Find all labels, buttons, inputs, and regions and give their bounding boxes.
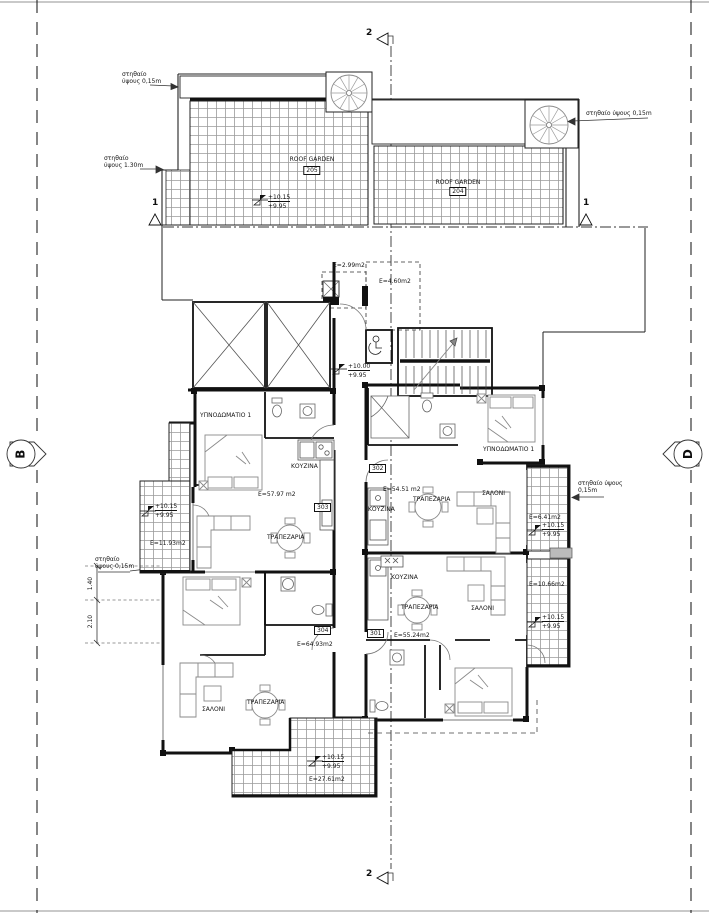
- balcony-left-level-top: +10.15: [155, 503, 177, 511]
- void-over-below: [193, 302, 330, 388]
- balcony-right-lower: [527, 559, 570, 667]
- roof-garden-left-label: ROOF GARDEN: [290, 156, 335, 163]
- bed-302-icon: [477, 394, 535, 442]
- entrance-level-bottom: +9.95: [348, 372, 366, 379]
- floor-plan-drawing: [0, 0, 709, 913]
- balcony-ru-level-bottom: +9.95: [542, 531, 560, 538]
- parapet-note-top-left: στηθαίούψους 0,15m: [122, 72, 161, 86]
- balcony-divider: [550, 548, 572, 558]
- bathroom-302-icon: [371, 393, 455, 438]
- section-arrow-1-right-icon: [580, 214, 592, 225]
- grid-letter-B: B: [13, 450, 27, 459]
- entrance-area-small: E=2.99m2: [333, 262, 365, 269]
- bed-303-icon: [199, 435, 262, 490]
- sofa-302-icon: [457, 492, 510, 553]
- section-2-bottom-label: 2: [366, 869, 372, 880]
- balcony-left: [140, 423, 190, 573]
- balcony-ru-area: E=6.41m2: [529, 514, 561, 521]
- u302-living-label: ΣΑΛΟΝΙ: [482, 490, 505, 497]
- balcony-bottom-level-top: +10.15: [322, 754, 344, 762]
- elevator-icon: [369, 336, 382, 354]
- u302-area-label: E=54.51 m2: [383, 486, 421, 493]
- u303-number: 303: [314, 504, 331, 511]
- roof-level-top: +10.15: [268, 194, 290, 202]
- bathroom-301-icon: [370, 650, 404, 712]
- parapet-note-mid-right: στηθαίο ύψους0,15m: [578, 481, 623, 495]
- parapet-note-top-right: στηθαίο ύψους 0,15m: [586, 110, 652, 117]
- balcony-ru-level-top: +10.15: [542, 522, 564, 530]
- bed-304-icon: [183, 577, 251, 625]
- u303-area-label: E=57.97 m2: [258, 491, 296, 498]
- sofa-303-icon: [197, 516, 250, 568]
- section-arrow-1-left-icon: [149, 214, 161, 225]
- dimension-140: 1.40: [87, 577, 94, 590]
- bathroom-304-icon: [281, 577, 332, 616]
- u303-bedroom-label: ΥΠΝΟΔΩΜΑΤΙΟ 1: [200, 412, 251, 419]
- balcony-left-level-bottom: +9.95: [155, 512, 173, 519]
- u304-dining-label: ΤΡΑΠΕΖΑΡΙΑ: [247, 699, 284, 706]
- section-1-right-label: 1: [583, 198, 589, 209]
- u302-bedroom-label: ΥΠΝΟΔΩΜΑΤΙΟ 1: [483, 446, 534, 453]
- section-arrow-2-top-icon: [377, 33, 388, 45]
- roof-garden-right-label: ROOF GARDEN: [436, 179, 481, 186]
- entrance-area-canopy: E=4.60m2: [379, 278, 411, 285]
- u303-dining-label: ΤΡΑΠΕΖΑΡΙΑ: [267, 534, 304, 541]
- u304-number: 304: [314, 627, 331, 634]
- spiral-stair-left-icon: [326, 72, 372, 112]
- u301-kitchen-label: ΚΟΥΖΙΝΑ: [391, 574, 418, 581]
- bed-301-icon: [445, 668, 512, 716]
- dimension-lines: [85, 563, 160, 646]
- parapet-note-mid-left: στηθαίούψους 0,15m: [95, 557, 134, 571]
- entrance-level-top: +10.00: [348, 363, 370, 371]
- kitchen-303-icon: [298, 440, 334, 530]
- dimension-210: 2.10: [87, 615, 94, 628]
- balcony-bottom-level-bottom: +9.95: [322, 763, 340, 770]
- u301-area-label: E=55.24m2: [394, 632, 430, 639]
- balcony-rl-level-top: +10.15: [542, 614, 564, 622]
- balcony-left-area: E=11.93m2: [150, 540, 186, 547]
- u303-kitchen-label: ΚΟΥΖΙΝΑ: [291, 463, 318, 470]
- u301-dining-label: ΤΡΑΠΕΖΑΡΙΑ: [401, 604, 438, 611]
- section-2-top-label: 2: [366, 28, 372, 39]
- u302-dining-label: ΤΡΑΠΕΖΑΡΙΑ: [413, 496, 450, 503]
- section-1-left-label: 1: [152, 198, 158, 209]
- u301-living-label: ΣΑΛΟΝΙ: [471, 605, 494, 612]
- u302-number: 302: [369, 465, 386, 472]
- balcony-rl-level-bottom: +9.95: [542, 623, 560, 630]
- balcony-bottom-area: E=27.61m2: [309, 776, 345, 783]
- section-arrow-2-bottom-icon: [377, 872, 388, 884]
- u304-area-label: E=64.93m2: [297, 641, 333, 648]
- u301-number: 301: [367, 630, 384, 637]
- balcony-bottom: [232, 718, 377, 797]
- balcony-rl-area: E=10.66m2: [529, 581, 565, 588]
- spiral-stair-right-icon: [525, 100, 578, 148]
- furniture: [180, 394, 535, 725]
- floor-plan-sheet: στηθαίούψους 0,15m στηθαίούψους 1.30m στ…: [0, 0, 709, 913]
- roof-garden-right-number: 204: [449, 188, 466, 195]
- roof-garden-left-number: 205: [303, 167, 320, 174]
- roof-level-bottom: +9.95: [268, 203, 286, 210]
- u302-kitchen-label: ΚΟΥΖΙΝΑ: [368, 506, 395, 513]
- grid-letter-D: D: [681, 449, 695, 459]
- bathroom-303-icon: [272, 398, 315, 418]
- kitchen-302-icon: [368, 488, 388, 545]
- parapet-note-left-high: στηθαίούψους 1.30m: [104, 156, 143, 170]
- u304-living-label: ΣΑΛΟΝΙ: [202, 706, 225, 713]
